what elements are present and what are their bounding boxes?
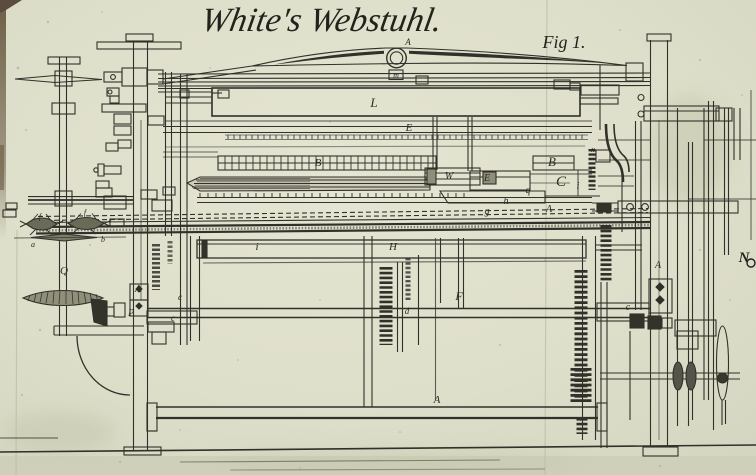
svg-text:P: P [127,308,134,319]
svg-text:F: F [454,289,463,303]
svg-text:b: b [101,235,105,244]
svg-text:c: c [171,313,175,323]
svg-text:N: N [738,250,751,266]
svg-text:q: q [526,185,531,196]
svg-text:Q: Q [60,265,68,277]
svg-text:B: B [315,157,322,169]
svg-text:d: d [405,306,410,316]
svg-text:White's Webstuhl.: White's Webstuhl. [199,1,446,39]
svg-text:L: L [369,95,377,110]
svg-text:m: m [393,71,399,80]
svg-text:h: h [504,196,509,207]
svg-text:A: A [545,204,553,215]
svg-text:B: B [548,154,556,169]
svg-text:i: i [577,181,580,192]
svg-text:A: A [433,394,441,406]
svg-text:E: E [483,173,490,184]
svg-text:c: c [178,292,182,302]
svg-text:x: x [590,145,595,154]
svg-text:A: A [134,284,142,295]
svg-text:g: g [485,206,490,217]
svg-text:C: C [556,174,567,190]
svg-text:E: E [405,122,413,134]
svg-text:Fig 1.: Fig 1. [542,32,586,52]
svg-text:i: i [255,241,258,253]
svg-text:A: A [654,260,662,271]
svg-text:H: H [388,241,398,253]
svg-text:c: c [626,302,631,313]
svg-text:a: a [31,240,35,249]
